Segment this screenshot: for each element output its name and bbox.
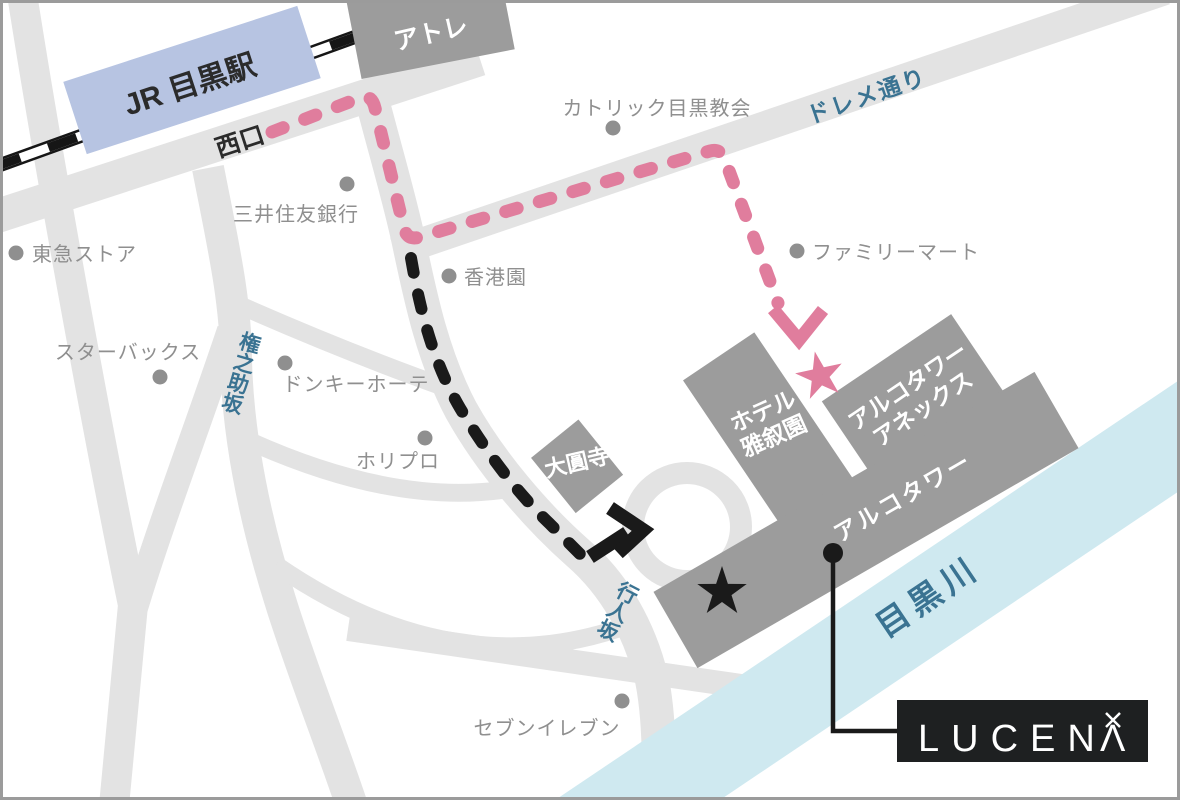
poi-label: カトリック目黒教会 xyxy=(563,97,752,120)
map-canvas: JR 目黒駅 西口 アトレ 大圓寺 ホテル雅叙園 アルコタワーアネックス アルコ… xyxy=(0,0,1180,800)
poi-smbc-bank: 三井住友銀行 xyxy=(233,177,359,227)
pink-arrowhead-icon xyxy=(773,309,823,340)
poi-dot xyxy=(606,121,621,136)
poi-dot xyxy=(418,431,433,446)
poi-label: スターバックス xyxy=(55,341,201,364)
poi-tokyu-store: 東急ストア xyxy=(9,243,138,266)
poi-horipro: ホリプロ xyxy=(356,431,440,474)
poi-label: 三井住友銀行 xyxy=(233,203,359,226)
leader-dot xyxy=(823,543,843,563)
poi-label: 東急ストア xyxy=(32,243,137,266)
poi-familymart: ファミリーマート xyxy=(790,242,981,264)
left-fork-road xyxy=(135,330,230,608)
poi-dot xyxy=(442,269,457,284)
lucena-logo-final-letter: Λ xyxy=(1100,718,1126,760)
poi-label: セブンイレブン xyxy=(474,716,621,740)
poi-label: 香港園 xyxy=(464,266,527,289)
poi-dot xyxy=(278,356,293,371)
poi-honkonen: 香港園 xyxy=(442,266,528,289)
access-map: JR 目黒駅 西口 アトレ 大圓寺 ホテル雅叙園 アルコタワーアネックス アルコ… xyxy=(0,0,1180,800)
poi-seven-eleven: セブンイレブン xyxy=(474,694,630,741)
poi-label: ファミリーマート xyxy=(812,242,980,264)
lucena-logo-text: LUCEN xyxy=(918,718,1107,760)
poi-label: ドンキーホーテ xyxy=(283,374,430,396)
poi-dot xyxy=(790,244,805,259)
poi-dot xyxy=(9,246,24,261)
poi-dot xyxy=(153,370,168,385)
poi-dot xyxy=(340,177,355,192)
gonnosuke-zaka-road xyxy=(208,168,352,800)
poi-dot xyxy=(615,694,630,709)
poi-label: ホリプロ xyxy=(356,451,440,473)
